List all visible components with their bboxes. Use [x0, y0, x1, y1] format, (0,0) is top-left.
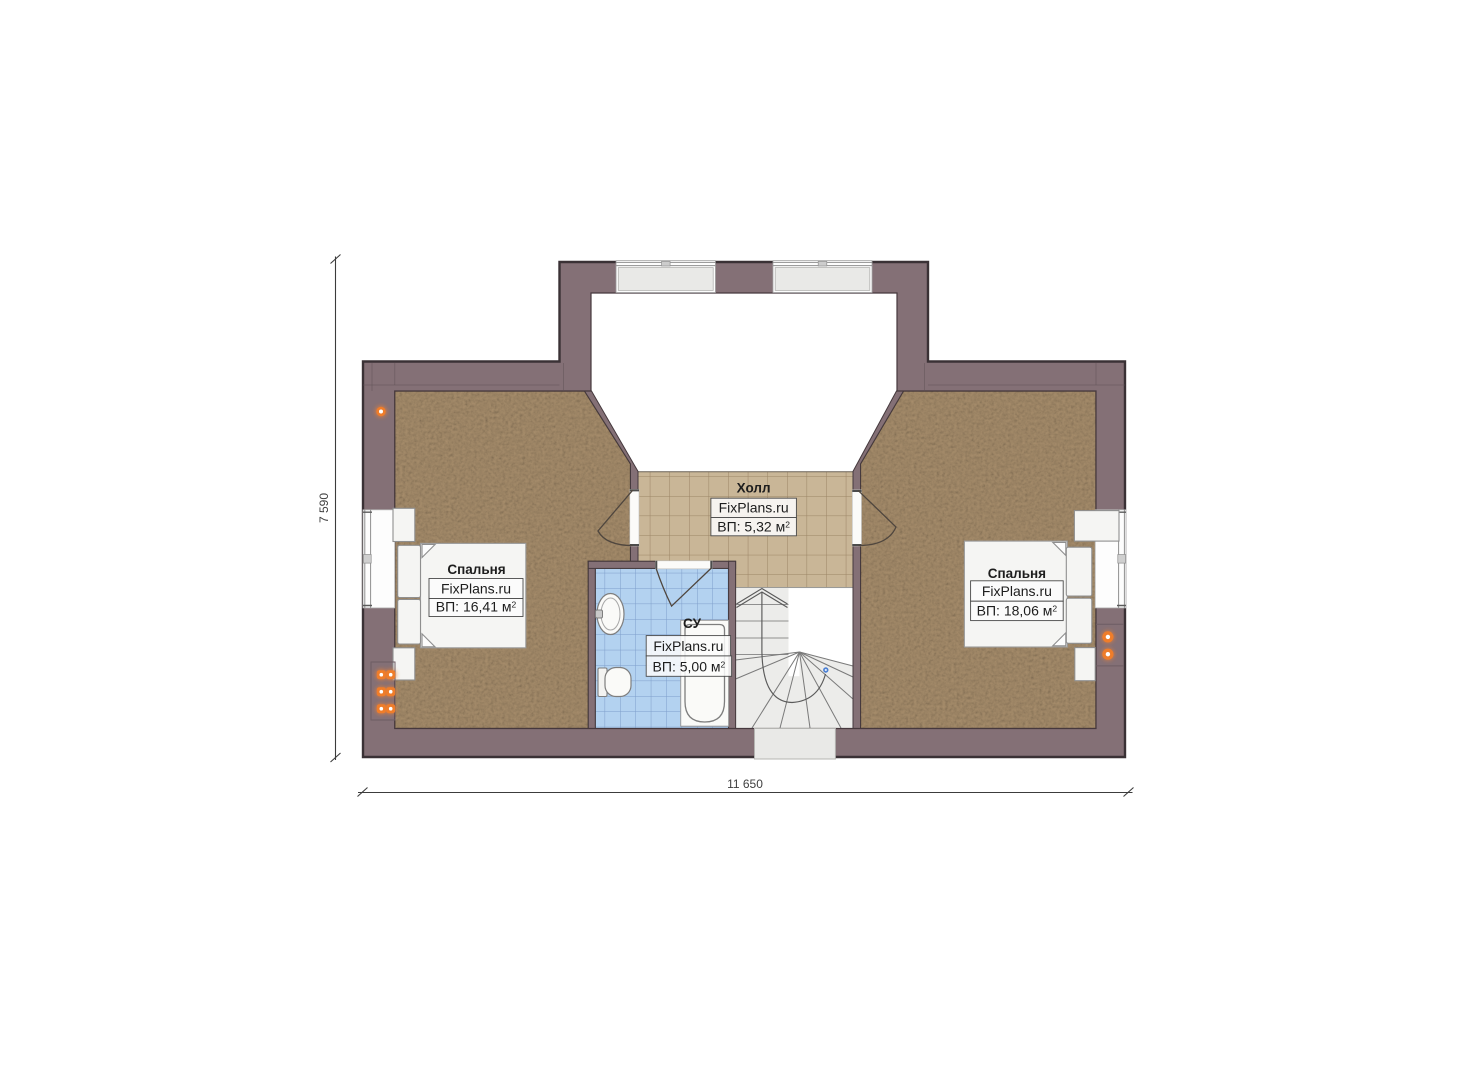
svg-text:ВП: 5,00 м2: ВП: 5,00 м2: [653, 658, 726, 674]
svg-text:7 590: 7 590: [317, 493, 331, 523]
svg-text:ВП: 18,06 м2: ВП: 18,06 м2: [977, 603, 1058, 619]
svg-text:FixPlans.ru: FixPlans.ru: [441, 581, 511, 597]
svg-text:Спальня: Спальня: [447, 562, 505, 577]
svg-text:СУ: СУ: [683, 616, 702, 631]
svg-text:Спальня: Спальня: [988, 566, 1046, 581]
svg-text:11 650: 11 650: [727, 777, 763, 791]
svg-text:FixPlans.ru: FixPlans.ru: [653, 638, 723, 654]
svg-text:ВП: 16,41 м2: ВП: 16,41 м2: [436, 599, 517, 615]
svg-text:FixPlans.ru: FixPlans.ru: [982, 583, 1052, 599]
svg-text:ВП: 5,32 м2: ВП: 5,32 м2: [717, 519, 790, 535]
svg-text:Холл: Холл: [737, 481, 771, 496]
svg-text:FixPlans.ru: FixPlans.ru: [719, 500, 789, 516]
